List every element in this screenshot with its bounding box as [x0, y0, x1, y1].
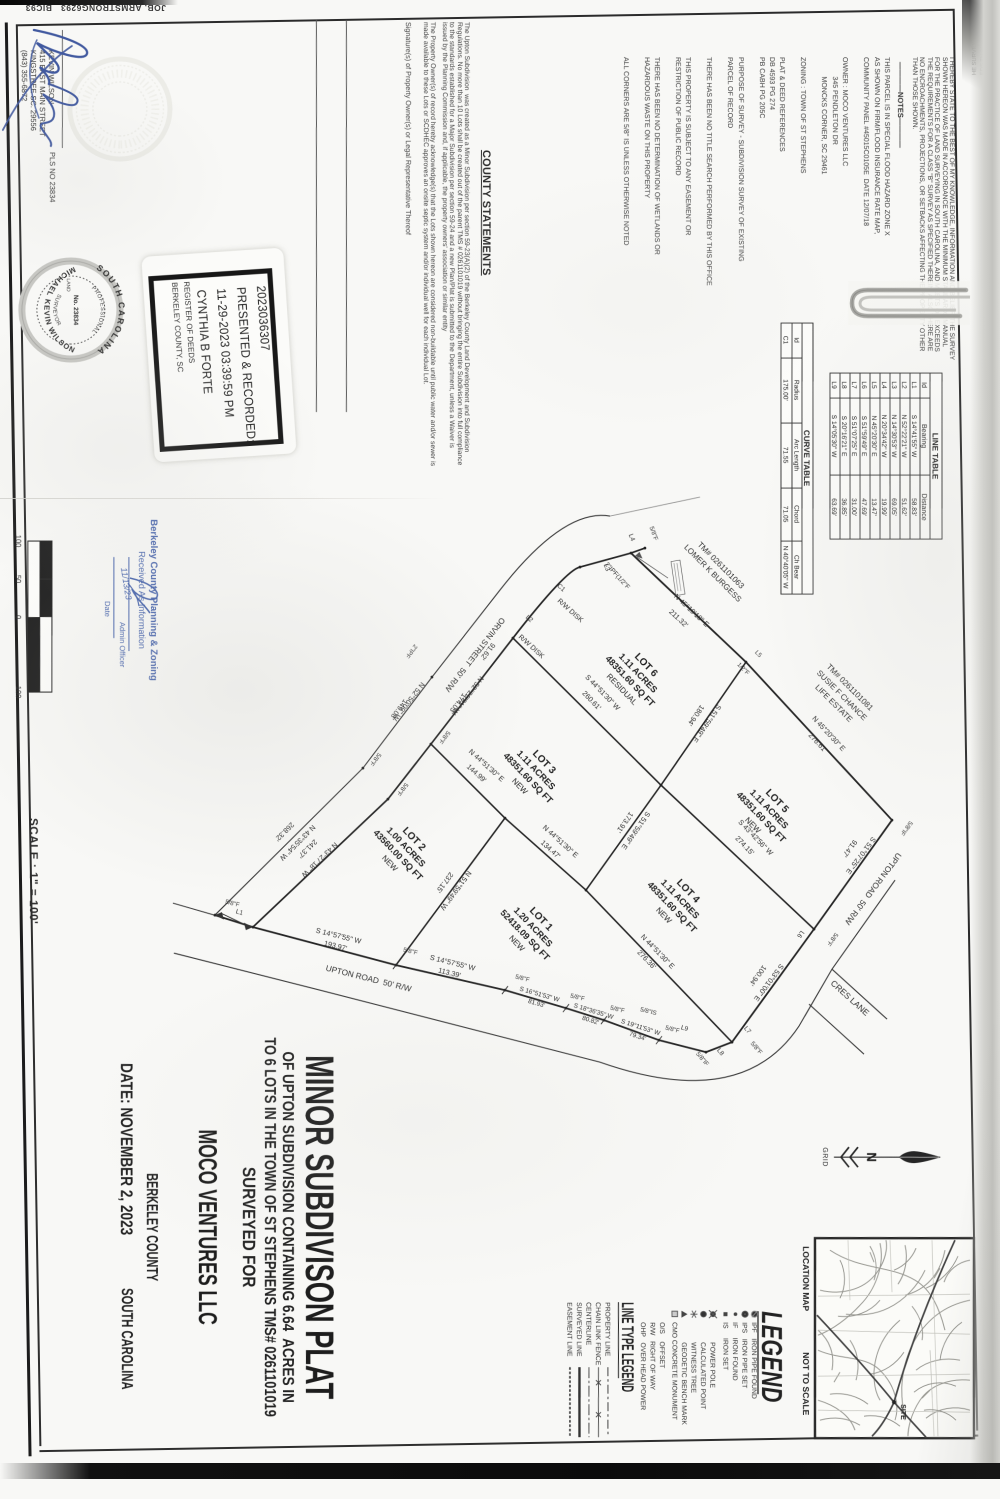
svg-text:S 51°07'25" E: S 51°07'25" E [850, 416, 858, 457]
svg-text:LAND: LAND [65, 278, 71, 292]
svg-text:5/8"F: 5/8"F [224, 899, 240, 909]
svg-text:100: 100 [14, 535, 23, 548]
svg-text:No. 23834: No. 23834 [72, 295, 79, 326]
svg-text:N 14°30'53" W: N 14°30'53" W [890, 415, 898, 459]
svg-text:5/8"F: 5/8"F [437, 729, 452, 745]
svg-text:L9: L9 [830, 381, 837, 389]
svg-text:L1: L1 [910, 381, 917, 389]
svg-text:POWER POLE: POWER POLE [708, 1342, 715, 1388]
svg-text:LINE TYPE LEGEND: LINE TYPE LEGEND [618, 1302, 637, 1392]
svg-text:5/8"IF: 5/8"IF [898, 819, 914, 836]
svg-text:Ch Bear: Ch Bear [792, 555, 799, 580]
svg-text:GEODETIC BENCH MARK: GEODETIC BENCH MARK [680, 1342, 687, 1425]
svg-text:N 20°34'42" W: N 20°34'42" W [880, 415, 888, 459]
svg-text:N 40°40'05" W: N 40°40'05" W [781, 546, 789, 590]
svg-text:L9: L9 [680, 1024, 689, 1033]
svg-text:175.00': 175.00' [781, 379, 788, 400]
svg-text:80.82': 80.82' [581, 1015, 600, 1027]
svg-text:IPF IRON PIPE FOUND: IPF IRON PIPE FOUND [750, 1322, 757, 1399]
svg-text:L5: L5 [753, 649, 763, 659]
svg-text:GRID: GRID [821, 1147, 828, 1167]
svg-text:Distance: Distance [920, 493, 927, 520]
svg-text:L4: L4 [880, 381, 887, 389]
svg-text:O/S OFFSET: O/S OFFSET [658, 1322, 665, 1368]
svg-text:S 14°41'55" W: S 14°41'55" W [910, 415, 918, 458]
svg-text:0: 0 [14, 615, 23, 619]
svg-text:5/8"F: 5/8"F [569, 993, 585, 1003]
svg-text:47.69': 47.69' [860, 498, 867, 516]
svg-text:5/8"IF: 5/8"IF [694, 1051, 710, 1068]
svg-text:5/8"F: 5/8"F [514, 974, 530, 984]
svg-text:S 14°05'30" W: S 14°05'30" W [830, 415, 838, 458]
svg-text:L6: L6 [860, 381, 867, 389]
svg-text:IS IRON SET: IS IRON SET [721, 1322, 728, 1370]
svg-text:71.55: 71.55 [781, 447, 788, 464]
svg-text:51.62': 51.62' [900, 498, 907, 516]
svg-text:L7: L7 [850, 381, 857, 389]
svg-text:CHAIN LINK FENCE: CHAIN LINK FENCE [594, 1302, 601, 1366]
svg-text:5/8"IS: 5/8"IS [639, 1006, 657, 1017]
svg-text:CRES LANE: CRES LANE [829, 978, 872, 1018]
svg-text:CALCULATED POINT: CALCULATED POINT [699, 1342, 706, 1409]
svg-text:50: 50 [14, 575, 23, 583]
svg-text:N 45°20'30" E: N 45°20'30" E [870, 416, 878, 458]
svg-text:IF IRON FOUND: IF IRON FOUND [731, 1322, 738, 1381]
svg-text:LEGEND: LEGEND [755, 1311, 787, 1403]
svg-text:L4: L4 [627, 533, 636, 543]
svg-text:N: N [864, 1152, 879, 1162]
svg-text:Id: Id [920, 382, 927, 388]
svg-text:13.47': 13.47' [870, 498, 877, 516]
svg-text:19.99': 19.99' [880, 498, 887, 516]
svg-text:L1: L1 [235, 908, 244, 917]
svg-text:L5: L5 [870, 381, 877, 389]
svg-text:Date: Date [103, 601, 112, 617]
svg-text:CENTERLINE: CENTERLINE [584, 1302, 591, 1346]
svg-text:IPS IRON PIPE SET: IPS IRON PIPE SET [740, 1322, 747, 1388]
svg-text:OHP OVER HEAD POWER: OHP OVER HEAD POWER [639, 1322, 646, 1410]
svg-text:UPTON ROAD 50' R/W: UPTON ROAD 50' R/W [325, 964, 413, 994]
svg-text:5/8"F: 5/8"F [395, 781, 410, 797]
svg-text:5/8"F: 5/8"F [825, 931, 839, 947]
svg-text:LINE TABLE: LINE TABLE [931, 433, 940, 480]
svg-text:S 51°59'49" E: S 51°59'49" E [860, 416, 868, 457]
svg-text:C1: C1 [781, 336, 788, 345]
svg-text:Chord: Chord [792, 505, 799, 523]
svg-text:5/8"F: 5/8"F [648, 526, 660, 542]
svg-text:100: 100 [14, 686, 23, 699]
svg-text:N 52°22'21" W: N 52°22'21" W [900, 415, 908, 459]
svg-text:PROFESSIONAL: PROFESSIONAL [90, 285, 105, 334]
svg-text:Radius: Radius [792, 380, 799, 401]
svg-text:LOCATION MAP: LOCATION MAP [801, 1246, 811, 1311]
svg-text:5/8"F: 5/8"F [402, 947, 418, 957]
svg-text:Bearing: Bearing [920, 424, 927, 448]
svg-text:Arc Length: Arc Length [792, 439, 799, 471]
svg-text:71.05: 71.05 [781, 506, 788, 523]
svg-text:S 20°16'21" E: S 20°16'21" E [840, 416, 848, 457]
svg-text:CMO CONCRETE MONUMENT: CMO CONCRETE MONUMENT [670, 1322, 677, 1420]
svg-text:R/W RIGHT OF WAY: R/W RIGHT OF WAY [648, 1322, 655, 1390]
svg-text:5/8"F: 5/8"F [749, 1040, 764, 1056]
svg-text:63.69': 63.69' [830, 498, 837, 516]
svg-text:PROPERTY LINE: PROPERTY LINE [603, 1302, 610, 1357]
svg-text:2"IPF: 2"IPF [404, 643, 419, 660]
svg-text:SURVEYED LINE: SURVEYED LINE [575, 1302, 582, 1357]
svg-text:NOT TO SCALE: NOT TO SCALE [801, 1352, 811, 1415]
svg-text:Admin Officer: Admin Officer [118, 622, 127, 668]
svg-text:31.00': 31.00' [850, 498, 857, 516]
svg-text:36.85': 36.85' [840, 498, 847, 516]
svg-text:WITNESS TREE: WITNESS TREE [689, 1342, 696, 1393]
svg-text:69.05': 69.05' [890, 498, 897, 516]
svg-text:11/13/23: 11/13/23 [119, 567, 134, 601]
svg-text:268.32': 268.32' [273, 820, 296, 843]
svg-text:L6: L6 [795, 929, 805, 939]
svg-text:R/W DISK: R/W DISK [556, 598, 585, 625]
svg-text:Id: Id [792, 337, 799, 343]
svg-text:L3: L3 [890, 381, 897, 389]
svg-text:L8: L8 [840, 381, 847, 389]
svg-text:EASEMENT LINE: EASEMENT LINE [565, 1302, 572, 1357]
svg-text:58.83': 58.83' [910, 498, 917, 516]
svg-text:SITE: SITE [899, 1404, 906, 1420]
svg-text:CURVE TABLE: CURVE TABLE [802, 430, 811, 487]
svg-text:5/8"F: 5/8"F [664, 1025, 680, 1035]
svg-text:81.93': 81.93' [527, 998, 545, 1009]
svg-text:L2: L2 [900, 381, 907, 389]
